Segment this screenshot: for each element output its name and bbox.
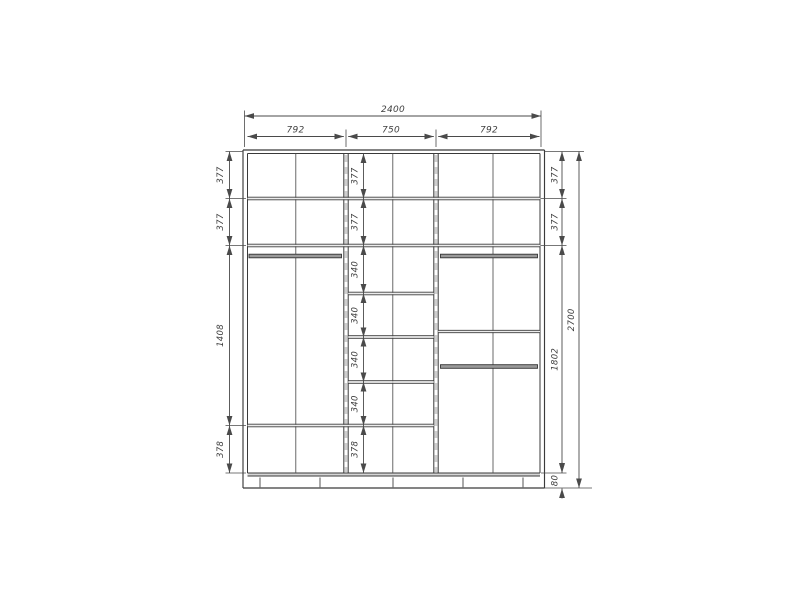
dim-label-top-section-1: 792 — [286, 126, 304, 136]
hanging-rods — [249, 254, 538, 368]
dim-label-top-section-3: 792 — [480, 126, 498, 136]
dim-label-center-3: 340 — [351, 261, 361, 278]
dim-label-center-7: 378 — [351, 440, 361, 457]
hanging-rod-right-middle — [441, 365, 538, 369]
dim-label-right-total: 2700 — [567, 308, 577, 331]
dimension-labels: 2400 792 750 792 377 377 1408 378 377 37… — [216, 105, 577, 486]
shelves — [248, 197, 541, 427]
dim-label-left-1: 377 — [216, 166, 226, 183]
hanging-rod-right-top — [441, 254, 538, 258]
dim-label-right-4: 80 — [551, 475, 561, 486]
dim-label-left-2: 377 — [216, 213, 226, 230]
dim-label-center-6: 340 — [351, 395, 361, 412]
base-feet-ticks — [260, 478, 523, 488]
dim-label-left-4: 378 — [216, 440, 226, 457]
dim-label-right-3: 1802 — [551, 348, 561, 371]
dim-label-right-2: 377 — [551, 213, 561, 230]
cabinet-frame — [243, 150, 545, 488]
dimension-lines — [230, 116, 580, 499]
dim-label-right-1: 377 — [551, 166, 561, 183]
wardrobe-elevation-drawing: 2400 792 750 792 377 377 1408 378 377 37… — [0, 0, 800, 600]
dim-label-center-4: 340 — [351, 307, 361, 324]
dim-label-top-total: 2400 — [381, 105, 405, 115]
dim-label-left-3: 1408 — [216, 324, 226, 347]
drawing-page: 2400 792 750 792 377 377 1408 378 377 37… — [0, 0, 800, 600]
dim-label-top-section-2: 750 — [382, 126, 400, 136]
dim-label-center-5: 340 — [351, 351, 361, 368]
dimension-extension-lines — [226, 111, 593, 489]
dim-label-center-2: 377 — [351, 213, 361, 230]
hanging-rod-left — [249, 254, 342, 258]
dim-label-center-1: 377 — [351, 167, 361, 184]
